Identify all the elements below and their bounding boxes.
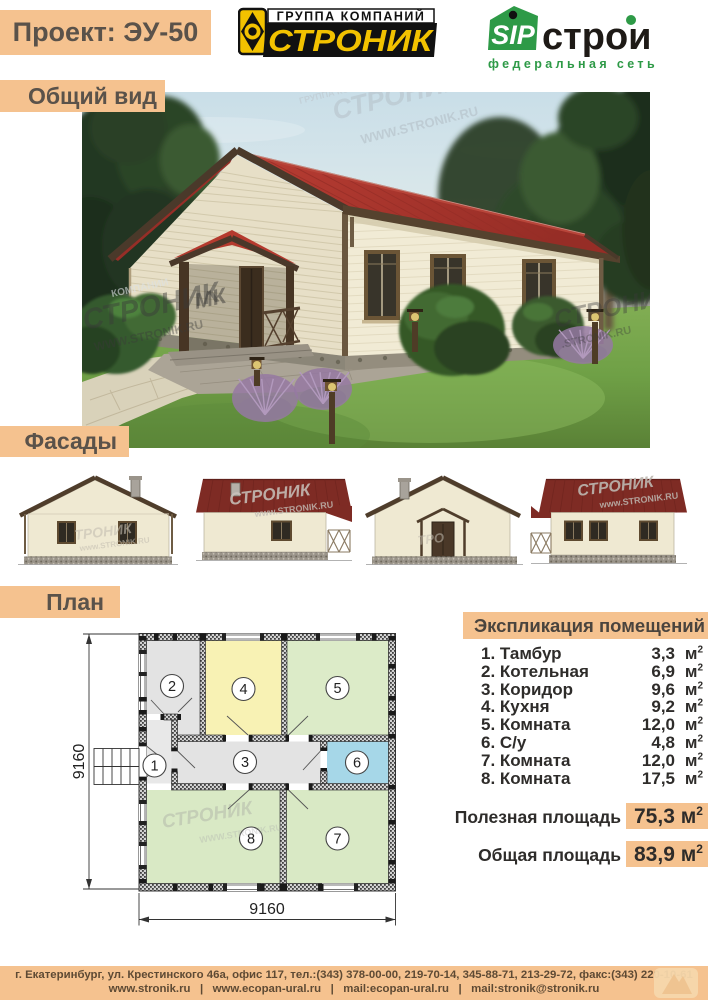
svg-text:9160: 9160	[249, 901, 285, 918]
svg-text:федеральная сеть: федеральная сеть	[488, 57, 658, 71]
svg-text:СТРОНИК: СТРОНИК	[268, 23, 434, 58]
svg-text:5: 5	[333, 681, 341, 697]
svg-text:6: 6	[353, 756, 361, 772]
svg-text:4: 4	[239, 682, 247, 698]
svg-text:9160: 9160	[71, 744, 88, 780]
svg-text:7: 7	[333, 832, 341, 848]
svg-text:SIP: SIP	[491, 20, 536, 50]
svg-text:ГРУППА КОМПАНИЙ: ГРУППА КОМПАНИЙ	[277, 9, 426, 24]
svg-text:3: 3	[241, 755, 249, 771]
svg-text:1: 1	[150, 759, 158, 775]
svg-text:2: 2	[168, 679, 176, 695]
